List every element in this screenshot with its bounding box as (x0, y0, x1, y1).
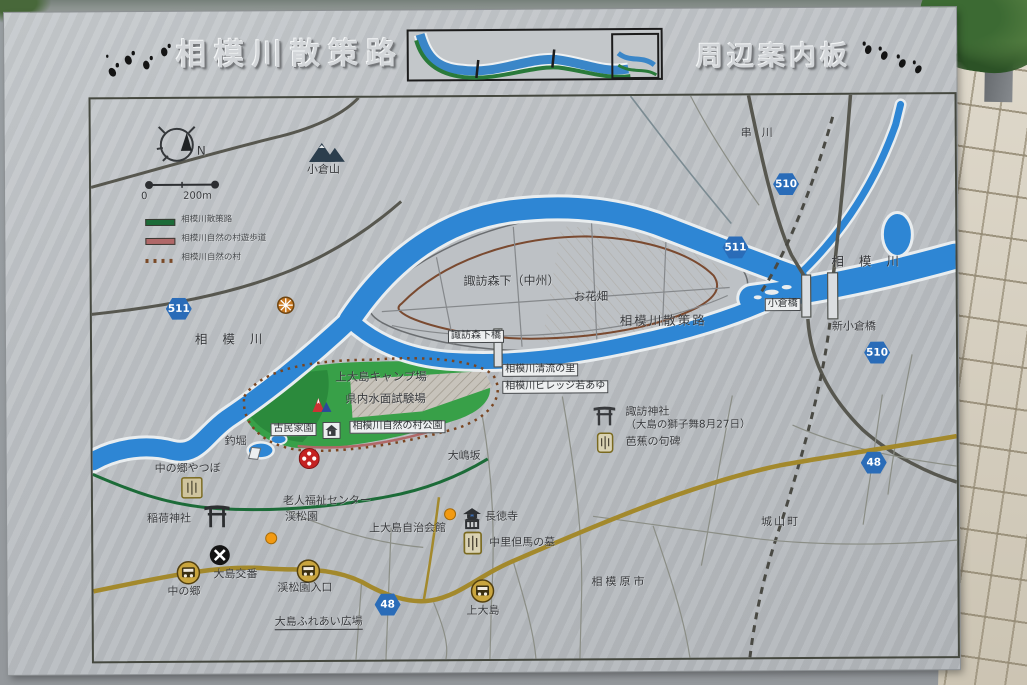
scale-end-label: 200m (183, 192, 212, 203)
grave-monument-icon (463, 531, 482, 555)
map-label-basho-kuhi: 芭蕉の句碑 (626, 436, 681, 448)
route-badge-511-number: 511 (168, 303, 190, 315)
point-of-interest-dot (265, 532, 277, 544)
photo-of-map-signboard: 相模川散策路 周辺案内板 (0, 0, 1027, 685)
yatsubo-stone-icon (181, 477, 203, 499)
route-badge-510-number: 510 (775, 178, 797, 190)
metal-sign-plate: 相模川散策路 周辺案内板 (4, 7, 960, 675)
map-label-oshima-fureai: 大島ふれあい広場 (275, 616, 363, 630)
route-badge-511-number: 511 (724, 241, 746, 253)
map-label-shin-ogurabashi: 新小倉橋 (832, 321, 876, 333)
point-of-interest-dot (444, 508, 456, 520)
map-label-suwamorishita: 諏訪森下（中州） (464, 275, 560, 288)
torii-icon (203, 503, 231, 531)
route-badge-48-number: 48 (866, 457, 881, 469)
map-label-shizen-no-mura-koen: 相模川自然の村公園 (349, 420, 445, 433)
map-label-sagamigawa-left: 相模川 (195, 332, 278, 346)
river-overview-inset-map (406, 21, 668, 85)
map-label-tsuribori: 釣堀 (225, 435, 247, 447)
map-label-inari-jinja: 稲荷神社 (147, 513, 191, 525)
route-badge-510-number: 510 (866, 347, 888, 359)
waterwheel-icon (277, 296, 295, 314)
torii-icon (592, 404, 616, 428)
folk-house-icon (322, 422, 340, 439)
map-label-kamioshima: 上大島 (467, 605, 500, 617)
map-label-ogurabashi: 小倉橋 (765, 298, 801, 311)
scale-start-label: 0 (141, 192, 147, 203)
legend-label-village-path: 相模川自然の村遊歩道 (181, 234, 266, 243)
legend-label-village-boundary: 相模川自然の村 (181, 253, 241, 262)
map-label-sagamigawa-right: 相模川 (831, 254, 914, 268)
map-label-nakazato-grave: 中里但馬の墓 (489, 537, 555, 549)
footprints-icon (860, 37, 924, 75)
footprints-icon (104, 38, 176, 80)
map-label-suwa-jinja: 諏訪神社 (625, 406, 669, 418)
legend-swatch-walkway (145, 219, 175, 226)
map-label-shiroyama-machi: 城山町 (761, 516, 800, 528)
legend-swatch-village-path (145, 238, 175, 245)
map-label-sansakuro: 相模川散策路 (620, 314, 707, 328)
map-label-nakanogo-yatsubo: 中の郷やつぼ (155, 463, 221, 475)
bus-stop-icon (470, 579, 494, 603)
haiku-monument-icon (597, 432, 614, 453)
map-label-sagamihara-shi: 相模原市 (591, 576, 647, 588)
map-label-camp: 上大島キャンプ場 (335, 370, 427, 383)
bus-stop-icon (296, 559, 320, 583)
police-box-icon (209, 545, 230, 566)
map-label-chotokuji: 長徳寺 (485, 511, 518, 523)
map-label-kominkaen: 古民家園 (270, 423, 316, 436)
map-label-oshima-koban: 大島交番 (213, 568, 257, 580)
map-label-seiryu-no-sato: 相模川清流の里 (502, 363, 578, 376)
map-label-village-wakaayu: 相模川ビレッジ若あゆ (502, 380, 608, 393)
scale-bar (143, 179, 221, 191)
map-frame: N 0 200m 相模川散策路 相模川自然の村遊歩道 相模川自然の村 小倉山 (89, 92, 960, 663)
map-label-ohanabatake: お花畑 (574, 290, 609, 302)
map-label-suwamorishitabashi: 諏訪森下橋 (448, 330, 504, 343)
map-label-kushikawa: 串川 (741, 127, 783, 139)
flower-park-icon (299, 448, 320, 469)
map-label-jichikaikan: 上大島自治会館 (369, 522, 446, 534)
temple-icon (461, 507, 483, 531)
map-label-keishoen-iriguchi: 渓松園入口 (277, 582, 332, 594)
map-label-keishoen: 渓松園 (285, 511, 318, 523)
bus-stop-icon (176, 561, 200, 585)
legend-label-walkway: 相模川散策路 (181, 216, 232, 225)
compass-north-label: N (197, 145, 206, 158)
map-label-suwa-jinja-note: （大島の獅子舞8月27日） (625, 419, 750, 431)
map-label-shikenjo: 県内水面試験場 (345, 392, 426, 405)
mountain-icon (309, 140, 347, 162)
route-badge-48-number: 48 (380, 599, 395, 611)
campsite-icon (310, 394, 334, 414)
legend-swatch-village-boundary (145, 259, 175, 263)
sign-title-left: 相模川散策路 (176, 28, 404, 73)
map-label-ogurayama: 小倉山 (307, 164, 340, 176)
map-label-rojin-center: 老人福祉センター (283, 495, 371, 507)
sign-title-right: 周辺案内板 (696, 34, 851, 74)
map-label-oshimazaka: 大嶋坂 (448, 450, 481, 462)
map-label-nakanogo: 中の郷 (167, 586, 200, 598)
fishing-pond-icon (248, 446, 262, 460)
